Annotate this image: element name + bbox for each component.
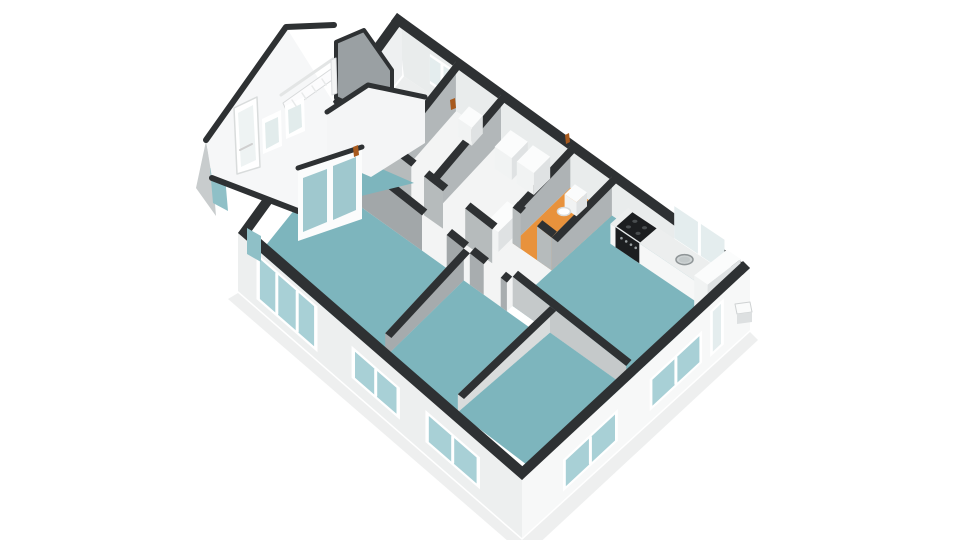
vent-box-front xyxy=(737,312,752,324)
french-door-glass-2 xyxy=(333,157,356,220)
wall-bedroom1-hall-b-face xyxy=(501,278,507,312)
wall-toilet-front-a-face xyxy=(513,208,521,249)
oven-knob-2 xyxy=(625,240,628,243)
toilet-bowl xyxy=(557,208,570,216)
floor-plan-3d-scene xyxy=(0,0,960,540)
vent-box-top xyxy=(735,302,752,314)
stove-burner-4 xyxy=(635,232,640,235)
french-door-glass-1 xyxy=(303,169,327,232)
oven-knob-4 xyxy=(634,247,637,250)
door-accent-storage xyxy=(450,98,456,110)
oven-knob-3 xyxy=(630,243,633,246)
annex-stair-post xyxy=(331,58,337,95)
floor-plan-figure xyxy=(0,0,960,540)
annex-door-glass xyxy=(238,105,256,167)
kitchen-sink-basin xyxy=(679,257,690,263)
oven-knob-1 xyxy=(620,237,623,240)
stove-burner-2 xyxy=(642,226,647,229)
stove-burner-1 xyxy=(632,220,637,223)
stove-burner-3 xyxy=(626,225,631,228)
floor-plan-page xyxy=(0,0,960,540)
se-back-door-glass xyxy=(713,304,721,352)
door-accent-annex xyxy=(353,145,359,157)
